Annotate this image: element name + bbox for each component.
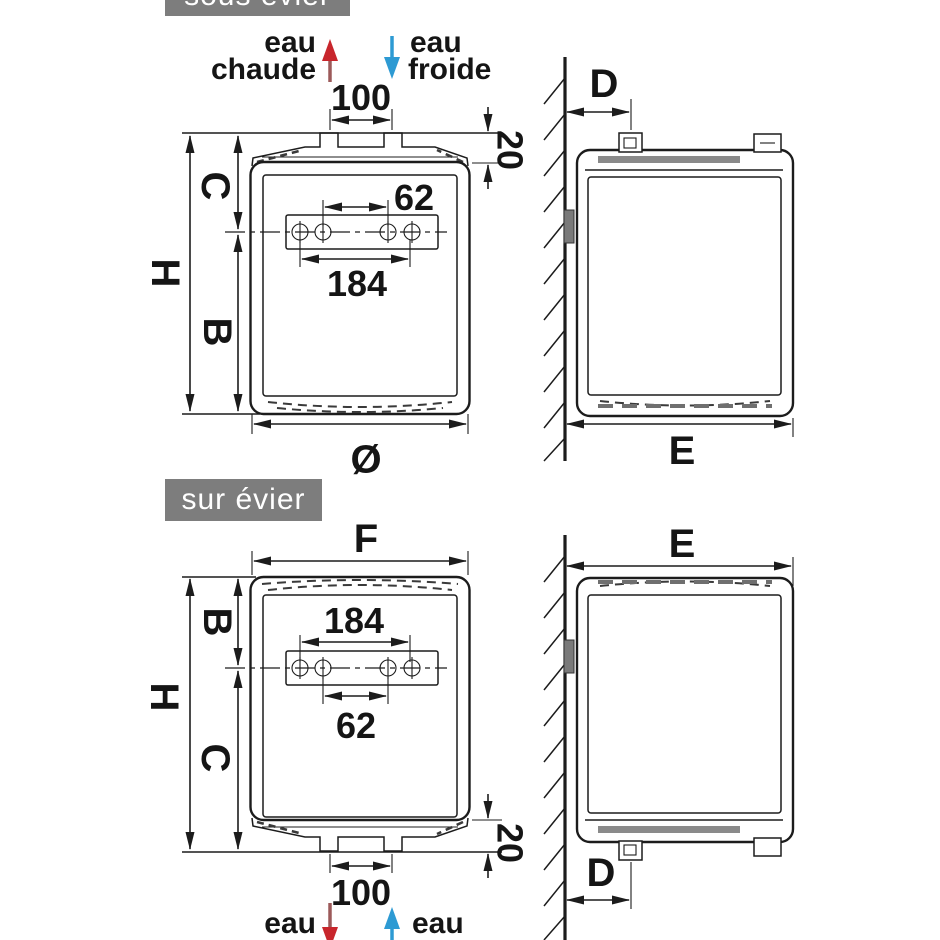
- dim-label-top-to-axis: B: [195, 608, 239, 637]
- tank-bottom-cap: [252, 818, 468, 851]
- dim-label-height: H: [143, 259, 187, 288]
- front-view-sur-evier: F 184 62: [142, 517, 531, 913]
- drawing-svg: eau chaude eau froide: [0, 0, 940, 940]
- cap-shoulder-hatch: [257, 150, 463, 162]
- cold-water-label-line2: froide: [408, 53, 491, 86]
- tank-bottom-seam: [268, 402, 452, 412]
- front-view-sous-evier: 100 20 H C B 62: [143, 77, 531, 482]
- dim-label-holes-outer: 184: [327, 263, 387, 304]
- bottom-seam-shading: [598, 826, 740, 833]
- dim-label-width: F: [354, 517, 378, 561]
- wall-bracket-clip: [564, 640, 574, 673]
- dim-label-holes-inner: 62: [336, 705, 376, 746]
- cap-shoulder-hatch: [257, 822, 463, 834]
- dim-cap-height: 20: [472, 794, 531, 878]
- dim-label-diameter: Ø: [350, 438, 381, 482]
- bottom-latch: [754, 838, 781, 856]
- dim-label-depth: E: [669, 429, 696, 473]
- dim-label-wall-offset: D: [587, 851, 616, 895]
- hanging-tab: [619, 841, 642, 860]
- top-seam-shading: [598, 156, 740, 163]
- dim-depth-E: E: [567, 522, 793, 586]
- cold-water-label-line1: eau: [412, 907, 464, 940]
- dim-depth-E: E: [567, 418, 793, 473]
- tank-top-seam: [262, 580, 458, 590]
- dim-label-holes-outer: 184: [324, 600, 384, 641]
- side-view-sur-evier: E D: [544, 522, 793, 940]
- hanging-tab: [619, 133, 642, 152]
- dim-height-H: H: [142, 579, 190, 849]
- dim-top-to-axis-C: C: [193, 136, 238, 229]
- dim-label-axis-to-bottom: B: [195, 318, 239, 347]
- dim-cap-height: 20: [472, 107, 531, 189]
- tank-side-shell: [577, 150, 793, 416]
- hot-water-label-line1: eau: [264, 907, 316, 940]
- tank-side-shell: [577, 578, 793, 842]
- dim-label-height: H: [142, 683, 186, 712]
- cold-water-down-arrow-icon: [384, 36, 400, 79]
- wall-hatching: [544, 556, 565, 940]
- dim-label-wall-offset: D: [590, 62, 619, 106]
- dim-holes-inner: 62: [323, 177, 434, 226]
- dim-wall-offset-D: D: [567, 62, 631, 130]
- wall-bracket-clip: [564, 210, 574, 243]
- dim-axis-to-bottom-B: B: [195, 235, 239, 411]
- dim-label-pipe-spacing: 100: [331, 872, 391, 913]
- dim-label-cap-height: 20: [490, 130, 531, 170]
- dim-axis-to-bottom-C: C: [193, 671, 238, 849]
- wall-hatching: [544, 78, 565, 461]
- dim-label-holes-inner: 62: [394, 177, 434, 218]
- dim-label-depth: E: [669, 522, 696, 566]
- dim-pipe-spacing-bottom: 100: [330, 854, 392, 913]
- side-view-sous-evier: D E: [544, 57, 793, 473]
- dim-height-H: H: [143, 136, 190, 411]
- dim-pipe-spacing-top: 100: [330, 77, 392, 130]
- tank-side-panel: [588, 177, 781, 395]
- technical-drawing-canvas: sous évier sur évier eau chaude eau froi…: [0, 0, 940, 940]
- dim-label-cap-height: 20: [490, 823, 531, 863]
- dim-label-axis-to-bottom: C: [193, 744, 237, 773]
- dim-holes-outer: 184: [300, 600, 410, 662]
- dim-width-F: F: [252, 517, 468, 575]
- dim-top-to-axis-B: B: [195, 579, 239, 665]
- dim-diameter: Ø: [252, 414, 468, 482]
- dim-label-top-to-axis: C: [193, 172, 237, 201]
- dim-holes-inner: 62: [323, 677, 388, 746]
- hot-water-label-line2: chaude: [211, 53, 316, 86]
- tank-side-panel: [588, 595, 781, 813]
- dim-label-pipe-spacing: 100: [331, 77, 391, 118]
- hot-water-up-arrow-icon: [322, 39, 338, 82]
